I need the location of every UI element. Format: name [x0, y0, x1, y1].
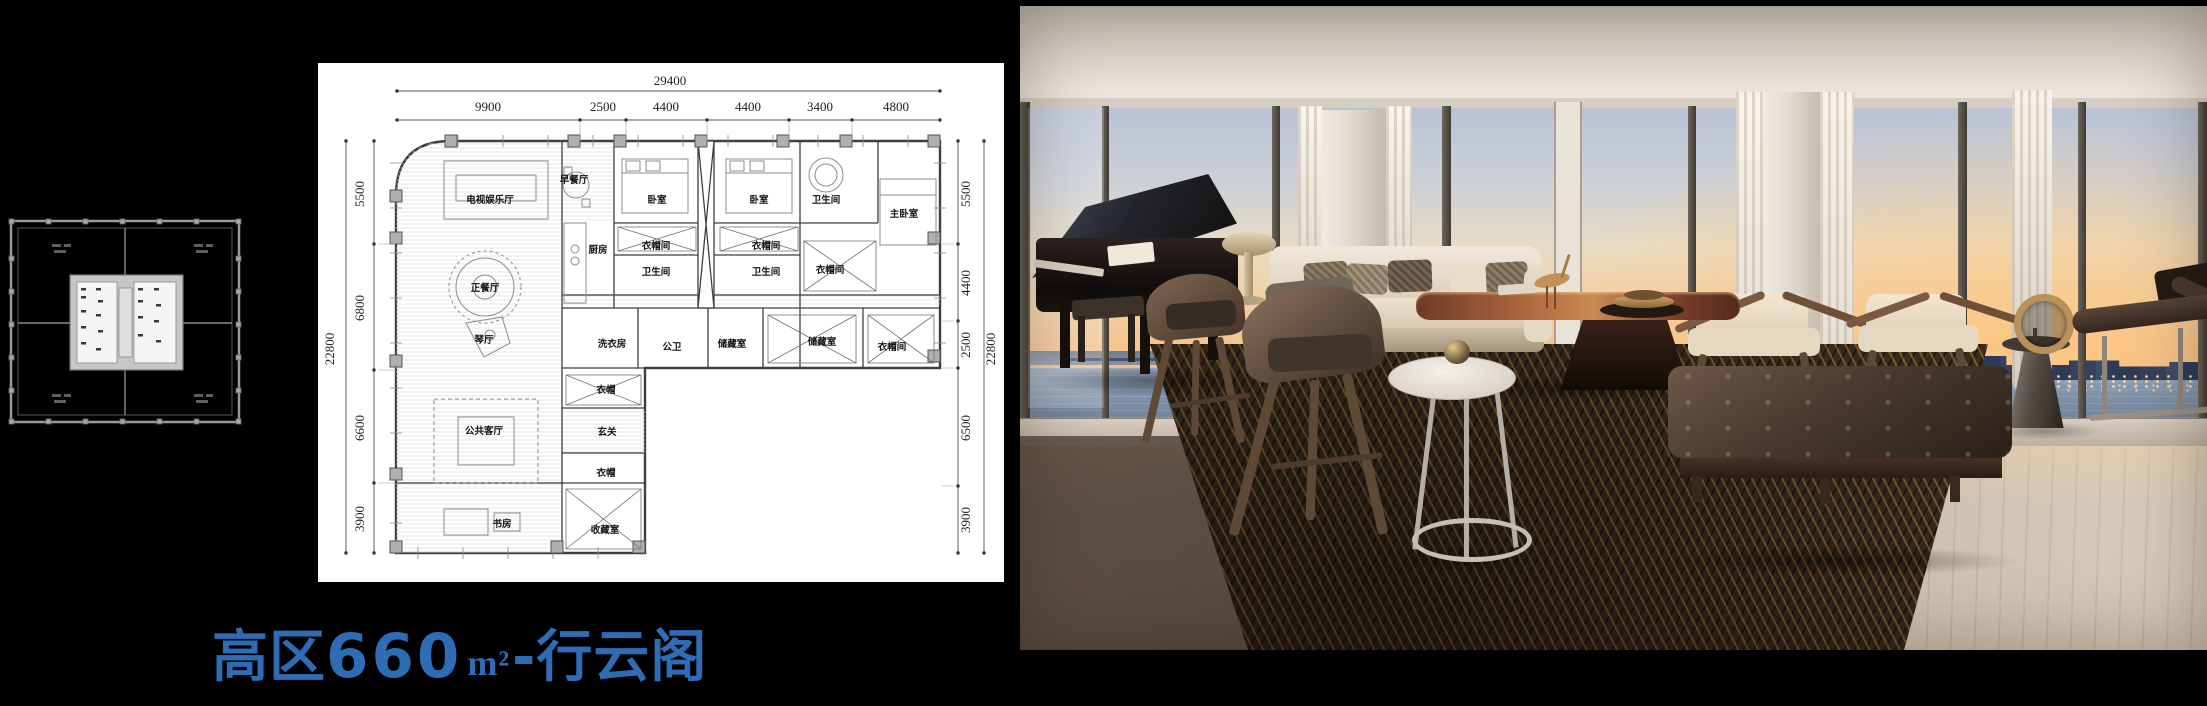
bird-sculpture-leg [1546, 286, 1548, 308]
room-label: 早餐厅 [560, 174, 589, 186]
room-label: 卧室 [749, 194, 769, 206]
ottoman-leg [1950, 476, 1960, 502]
lounge-chair-cushion [1267, 333, 1373, 372]
floor-plan-panel: 2940099002500440044003400480022800550068… [318, 63, 1004, 582]
dim-label: 5500 [352, 181, 367, 207]
room-label: 玄关 [597, 426, 617, 438]
dim-label: 9900 [475, 99, 501, 114]
room-label: 卫生间 [752, 266, 781, 278]
window-mullion [2078, 102, 2086, 424]
ring-ornament [2014, 294, 2074, 354]
piano-bench-leg [1078, 316, 1085, 362]
room-label: 储藏室 [808, 336, 837, 348]
room-label: 主卧室 [890, 208, 919, 220]
lounge-chair-cushion [1165, 300, 1237, 331]
title-area-value: 660 [326, 629, 462, 686]
title-suffix: -行云阁 [512, 630, 707, 686]
dim-label: 4800 [883, 99, 909, 114]
dim-label: 3900 [958, 507, 973, 533]
ottoman-cushion [1668, 366, 2012, 458]
room-label: 衣帽 [596, 384, 616, 396]
piano-bench-leg [1128, 314, 1135, 362]
room-label: 公卫 [662, 342, 682, 353]
dim-label: 6800 [352, 295, 367, 321]
piano-leg [1060, 304, 1070, 368]
dim-label: 4400 [735, 99, 761, 114]
floor-plan-drawing: 2940099002500440044003400480022800550068… [318, 63, 1004, 582]
dim-label: 29400 [654, 73, 687, 88]
interior-rendering [1020, 6, 2207, 650]
room-label: 琴厅 [474, 334, 494, 346]
dim-label: 22800 [322, 333, 337, 366]
chaise-leg [2178, 328, 2183, 414]
side-table-foot-ring [1412, 518, 1532, 562]
dim-label: 6600 [352, 415, 367, 441]
room-label: 衣帽间 [878, 341, 907, 353]
ottoman-leg [1820, 478, 1830, 504]
dim-label: 3400 [807, 99, 833, 114]
dim-label: 3900 [352, 506, 367, 532]
key-plan-diagram [8, 218, 242, 425]
room-label: 公共客厅 [465, 425, 504, 437]
room-label: 卧室 [647, 194, 667, 206]
room-label: 洗衣房 [598, 338, 627, 350]
room-label: 衣帽间 [816, 264, 845, 276]
bowl [1624, 290, 1664, 300]
dim-label: 4400 [958, 270, 973, 296]
title-prefix: 高区 [212, 630, 326, 686]
dim-label: 6500 [958, 415, 973, 441]
sphere-ornament [1444, 340, 1470, 364]
room-label: 衣帽间 [642, 240, 671, 252]
chaise-leg [2102, 336, 2107, 414]
coffee-table-slab [1416, 292, 1740, 320]
room-label: 衣帽间 [752, 240, 781, 252]
dim-label: 22800 [983, 333, 998, 366]
sofa-pillow [1387, 259, 1432, 293]
room-label: 书房 [492, 518, 511, 530]
ottoman-shadow [1660, 546, 2020, 576]
room-label: 收藏室 [591, 524, 620, 536]
room-label: 衣帽 [596, 467, 616, 479]
room-label: 电视娱乐厅 [466, 194, 514, 206]
room-label: 厨房 [588, 244, 607, 256]
slide-title: 高区 660 m² -行云阁 [212, 629, 707, 686]
room-label: 储藏室 [718, 338, 747, 350]
room-label: 正餐厅 [471, 282, 500, 294]
presentation-slide: 2940099002500440044003400480022800550068… [0, 0, 2207, 706]
ottoman-leg [1692, 476, 1702, 502]
dim-label: 2500 [590, 99, 616, 114]
key-plan-core [70, 275, 183, 370]
room-label: 卫生间 [642, 266, 671, 278]
dim-label: 2500 [958, 332, 973, 358]
room-label: 卫生间 [812, 194, 841, 206]
dim-label: 4400 [653, 99, 679, 114]
dim-label: 5500 [958, 181, 973, 207]
sofa-pillow [1449, 263, 1490, 294]
title-area-unit: m² [467, 645, 510, 683]
bird-sculpture-leg [1554, 287, 1556, 309]
